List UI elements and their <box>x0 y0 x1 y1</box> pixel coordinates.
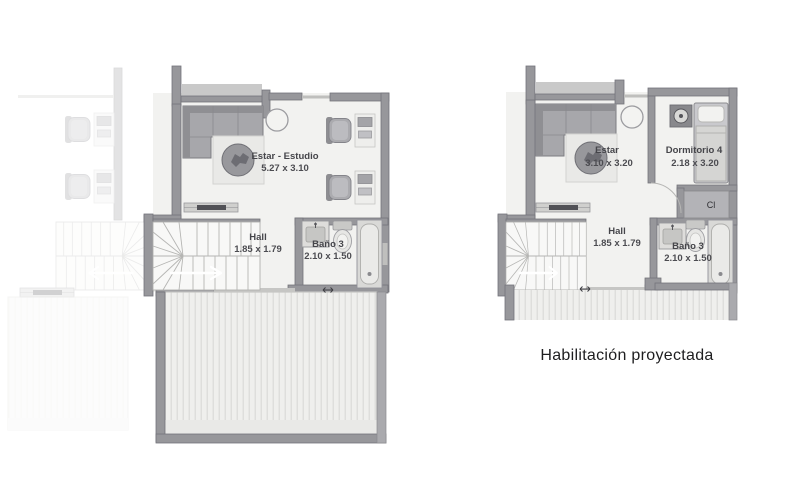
right-dormitorio4-label: Dormitorio 4 <box>666 145 723 156</box>
left-estar-estudio-label: Estar - Estudio <box>251 151 318 162</box>
ghost-staircase <box>56 222 148 290</box>
floorplan-image: Estar - Estudio 5.27 x 3.10 Hall 1.85 x … <box>0 0 800 479</box>
projected-enablement-caption: Habilitación proyectada <box>540 347 713 364</box>
ghost-workstation <box>65 113 114 146</box>
left-side-table <box>266 109 288 131</box>
left-estar-estudio-dims: 5.27 x 3.10 <box>261 163 309 174</box>
right-side-table <box>621 106 643 128</box>
right-estar-dims: 3.10 x 3.20 <box>585 158 633 169</box>
right-estar-label: Estar <box>595 145 619 156</box>
right-closet: Cl <box>684 191 729 218</box>
right-console-table <box>536 203 590 212</box>
right-staircase <box>506 222 586 290</box>
floorplan-svg: Estar - Estudio 5.27 x 3.10 Hall 1.85 x … <box>0 0 800 479</box>
left-bano3-label: Baño 3 <box>312 239 344 250</box>
right-hall-dims: 1.85 x 1.79 <box>593 238 641 249</box>
left-bathtub <box>357 220 382 288</box>
right-bano3-label: Baño 3 <box>672 241 704 252</box>
right-bed <box>694 103 728 183</box>
ghost-console <box>20 288 74 297</box>
right-dormitorio4-dims: 2.18 x 3.20 <box>671 158 719 169</box>
right-floor-plan: Cl <box>498 66 737 364</box>
left-console-table <box>184 203 238 212</box>
right-closet-label: Cl <box>707 200 716 210</box>
right-bano3-dims: 2.10 x 1.50 <box>664 253 712 264</box>
ghost-adjacent-unit-plan <box>8 68 148 430</box>
left-staircase <box>153 222 260 290</box>
ghost-terrace <box>8 297 128 430</box>
left-floor-plan: Estar - Estudio 5.27 x 3.10 Hall 1.85 x … <box>144 66 389 443</box>
left-terrace <box>156 292 386 443</box>
left-hall-dims: 1.85 x 1.79 <box>234 244 282 255</box>
ghost-workstation <box>65 170 114 203</box>
right-nightstand <box>670 105 692 127</box>
left-hall-label: Hall <box>249 232 266 243</box>
left-bano3-dims: 2.10 x 1.50 <box>304 251 352 262</box>
right-hall-label: Hall <box>608 226 625 237</box>
